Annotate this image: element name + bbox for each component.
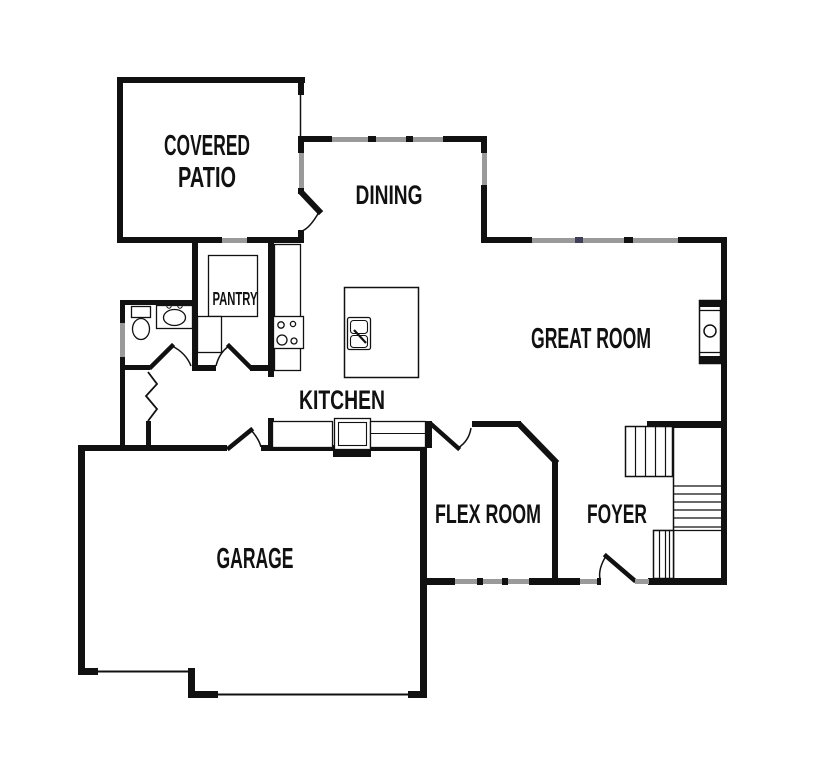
door-swing-garage-entry [229, 430, 261, 448]
room-label-flex-room: FLEX ROOM [435, 499, 541, 529]
window-flex-1 [455, 579, 477, 584]
foyer-walls [557, 556, 649, 585]
window-dining-top [332, 137, 443, 142]
kitchen-island [345, 288, 419, 378]
floor-plan-page: COVERED PATIO DINING PANTRY KITCHEN GREA… [0, 0, 819, 768]
room-label-covered-patio-line1: COVERED [164, 130, 250, 162]
door-swing-powder-room [151, 346, 191, 367]
kitchen-sink-icon [335, 419, 371, 450]
kitchen-counter-west [275, 245, 301, 371]
kitchen-fixtures [273, 245, 426, 450]
room-label-great-room: GREAT ROOM [531, 323, 651, 355]
kitchen-counter-south-right [371, 422, 426, 448]
window-foyer-sidelight-right [635, 579, 649, 584]
window-flex-2 [483, 579, 502, 584]
window-flex-3 [508, 579, 529, 584]
room-label-kitchen: KITCHEN [299, 385, 385, 415]
window-powder-room [120, 323, 125, 357]
hall-closet [146, 372, 157, 448]
cooktop-icon [274, 317, 304, 349]
island-sink-icon [348, 318, 371, 350]
toilet-icon [132, 307, 151, 340]
room-label-foyer: FOYER [587, 499, 647, 529]
powder-room [120, 300, 198, 448]
window-foyer-sidelight-left [580, 579, 597, 584]
window-great-room [532, 238, 678, 243]
window-dining-left [299, 153, 304, 188]
door-swing-flex-room [431, 424, 471, 448]
bifold-closet-doors [146, 372, 157, 421]
door-swing-patio [302, 193, 319, 231]
window-pantry [222, 238, 247, 243]
room-label-pantry: PANTRY [213, 289, 258, 309]
window-dining-right [482, 153, 487, 185]
great-room-walls [481, 237, 727, 585]
room-label-garage: GARAGE [217, 543, 294, 575]
floor-plan-drawing: COVERED PATIO DINING PANTRY KITCHEN GREA… [0, 0, 819, 768]
room-label-covered-patio-line2: PATIO [178, 162, 236, 194]
door-swing-front-entry [600, 556, 634, 580]
kitchen-counter-south-left [273, 422, 333, 448]
room-label-dining: DINING [356, 180, 423, 210]
bathroom-sink-icon [157, 304, 193, 329]
pantry-walls [192, 240, 274, 448]
